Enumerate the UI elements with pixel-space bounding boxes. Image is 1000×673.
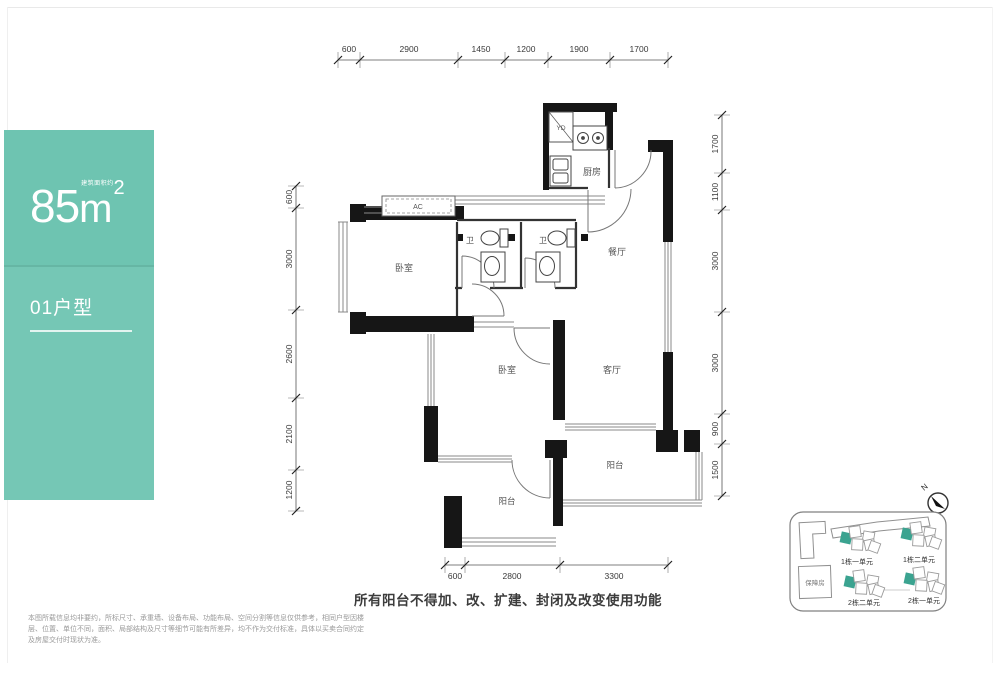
site-map: N 保障房 1栋一单元 1栋二单元 2栋二单元 [775, 465, 965, 625]
toilet-second [548, 229, 575, 247]
svg-text:1200: 1200 [284, 480, 294, 499]
svg-text:3000: 3000 [284, 249, 294, 268]
living-label: 客厅 [603, 364, 621, 375]
bedroom-second-label: 卧室 [498, 364, 516, 375]
support-housing: 保障房 [798, 565, 831, 598]
svg-text:3300: 3300 [605, 571, 624, 581]
dimension-right [714, 111, 730, 500]
basin-master [481, 252, 505, 282]
walls [350, 103, 700, 548]
dimension-right-values: 1700 1100 3000 3000 900 1500 [710, 134, 720, 479]
floorplan-page: 85建筑面积约m2 01户型 600 2900 1450 1200 1900 1… [0, 0, 1000, 673]
building-2-unit-1-label: 2栋一单元 [908, 596, 940, 605]
svg-text:2800: 2800 [503, 571, 522, 581]
svg-text:1500: 1500 [710, 460, 720, 479]
bath-second-label: 卫 [539, 236, 547, 245]
svg-text:600: 600 [284, 190, 294, 204]
balcony-living-label: 阳台 [606, 460, 623, 470]
compass: N [920, 482, 948, 513]
stove [573, 126, 607, 150]
building-1-unit-1-label: 1栋一单元 [841, 557, 873, 566]
dimension-left-values: 600 3000 2600 2100 1200 [284, 190, 294, 500]
svg-text:1700: 1700 [710, 134, 720, 153]
compass-n-label: N [920, 482, 930, 493]
basin-second [536, 252, 560, 282]
svg-text:600: 600 [448, 571, 462, 581]
svg-text:1450: 1450 [472, 44, 491, 54]
kitchen-label: 厨房 [583, 166, 601, 177]
svg-text:2600: 2600 [284, 344, 294, 363]
svg-text:1100: 1100 [710, 183, 720, 202]
svg-text:2900: 2900 [400, 44, 419, 54]
building-2-unit-2-label: 2栋二单元 [848, 598, 880, 607]
disclaimer-text: 本图所载信息均非要约，所标尺寸、承重墙、设备布局、功能布局、空间分割等信息仅供参… [28, 613, 370, 646]
svg-text:3000: 3000 [710, 251, 720, 270]
building-1-unit-2-label: 1栋二单元 [903, 555, 935, 564]
balcony-bedroom-label: 阳台 [498, 496, 515, 506]
dimension-bottom [441, 557, 672, 573]
laundry-label: YD [556, 125, 565, 132]
svg-text:2100: 2100 [284, 424, 294, 443]
balcony-rule-note: 所有阳台不得加、改、扩建、封闭及改变使用功能 [308, 589, 708, 609]
dimension-bottom-values: 600 2800 3300 [448, 571, 624, 581]
dining-label: 餐厅 [608, 246, 626, 257]
bath-master-label: 卫 [466, 236, 474, 245]
support-housing-label: 保障房 [805, 578, 825, 587]
svg-text:600: 600 [342, 44, 356, 54]
svg-text:900: 900 [710, 422, 720, 436]
ac-label: AC [413, 204, 423, 211]
toilet-master [481, 229, 508, 247]
svg-text:1900: 1900 [570, 44, 589, 54]
kitchen-sink [550, 156, 571, 186]
svg-text:1700: 1700 [630, 44, 649, 54]
bedroom-master-label: 卧室 [395, 262, 413, 273]
svg-text:3000: 3000 [710, 353, 720, 372]
dimension-top-values: 600 2900 1450 1200 1900 1700 [342, 44, 649, 54]
svg-text:1200: 1200 [517, 44, 536, 54]
dimension-top [334, 52, 672, 68]
